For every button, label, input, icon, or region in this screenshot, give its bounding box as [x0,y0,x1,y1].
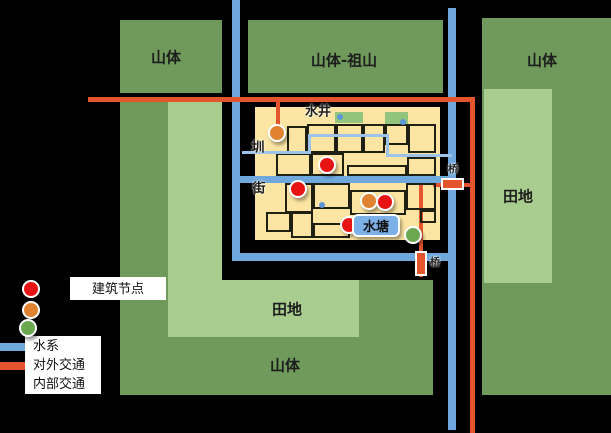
label-mountain-top-left: 山体 [151,47,181,68]
legend-internal-traffic-swatch [0,383,25,386]
legend-label-external-traffic: 对外交通 [33,359,85,373]
label-bridge-south: 桥 [430,254,440,269]
legend-label-water: 水系 [33,340,59,354]
legend-green-node-icon [19,319,37,337]
building-node-red [376,193,394,211]
water-point-icon [319,202,325,208]
legend-red-node-icon [22,280,40,298]
water-point-icon [400,119,406,125]
legend-water-swatch [0,343,25,351]
label-field-bottom: 田地 [272,299,302,320]
label-well: 水井 [305,101,331,120]
legend-label-building-node: 建筑节点 [92,283,144,297]
label-mountain-right: 山体 [527,50,557,71]
building-node-orange [268,124,286,142]
water-point-icon [337,114,343,120]
bridge-east [441,178,464,190]
pond-label-box: 水塘 [352,214,400,237]
label-channel: 圳 [251,137,264,156]
label-field-right: 田地 [503,186,533,207]
legend-external-traffic-swatch [0,362,25,370]
building-node-red [318,156,336,174]
label-pond: 水塘 [363,216,389,235]
village-siting-diagram: 山体 山体-祖山 山体 田地 田地 山体 水井 圳 街 桥 桥 水塘 建筑节点 … [0,0,611,433]
bridge-south [415,251,427,276]
building-node-green [404,226,422,244]
label-mountain-bottom: 山体 [270,355,300,376]
building-node-red [289,180,307,198]
label-street: 街 [252,178,265,197]
legend-label-internal-traffic: 内部交通 [33,378,85,392]
legend-orange-node-icon [22,301,40,319]
label-mountain-ancestor: 山体-祖山 [311,50,377,71]
label-bridge-right: 桥 [448,161,458,176]
